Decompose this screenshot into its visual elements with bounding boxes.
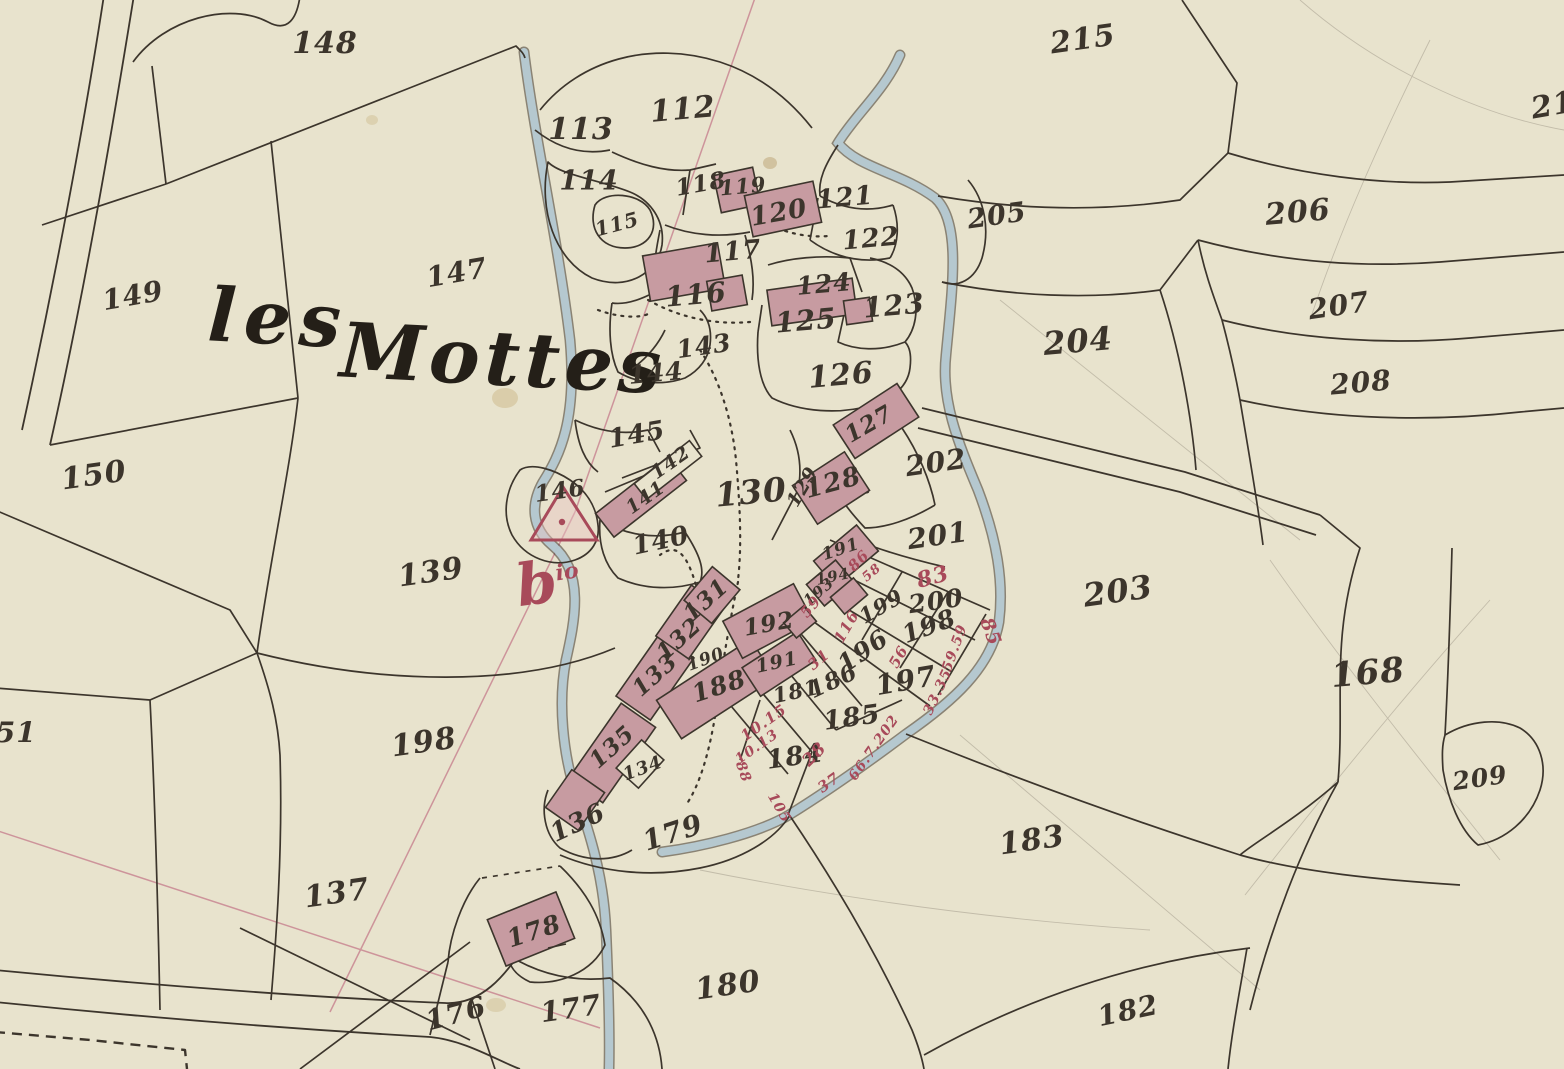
- map-canvas: [0, 0, 1564, 1069]
- cadastral-map: les Mottes bio 1481121131141151181191201…: [0, 0, 1564, 1069]
- road-lines: [0, 0, 1320, 1069]
